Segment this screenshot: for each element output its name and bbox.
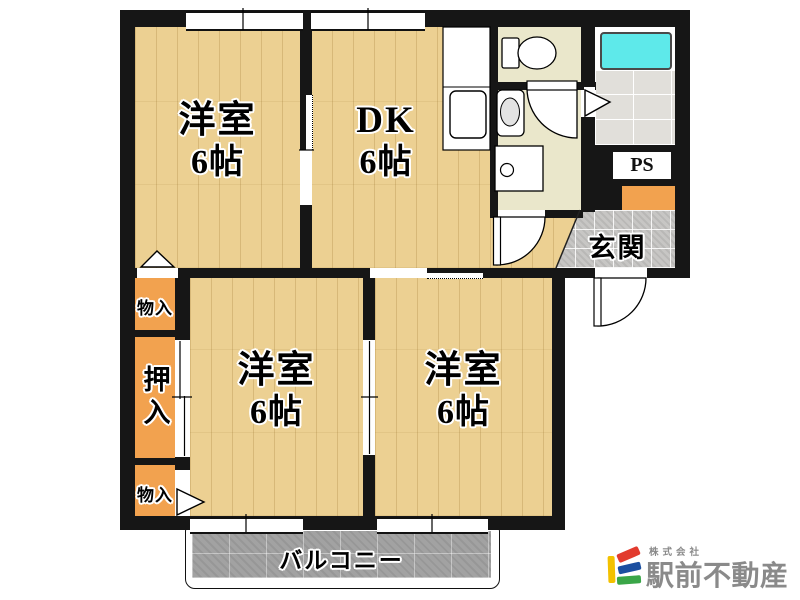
room-size: 6帖 [135,143,300,182]
plan-symbols [0,0,800,600]
washroom-door-swing-icon [497,217,545,265]
closet-top-door-icon [141,251,174,267]
floor-plan: 洋室 6帖 DK 6帖 洋室 6帖 洋室 6帖 玄関 物入 押入 物入 PS バ… [0,0,800,600]
room-name: 洋室 [135,100,300,143]
closet-bottom-door-icon [177,489,204,515]
balcony-label: バルコニー [185,541,498,575]
toilet-bowl-icon [518,37,556,69]
room-name: 洋室 [190,350,363,393]
entrance-door-leaf-icon [594,278,601,326]
toilet-door-swing-icon [527,88,577,138]
room-name: DK [305,100,467,143]
closet-middle-label: 押入 [130,343,180,453]
washing-machine-dial-icon [501,164,514,177]
washbasin-bowl-icon [501,98,520,126]
closet-top-label: 物入 [135,294,175,319]
entrance-label: 玄関 [560,226,675,265]
bath-folding-door-icon [585,90,610,116]
logo-mark-red-bar [616,546,641,563]
room-size: 6帖 [375,393,552,432]
room-label-dk: DK 6帖 [305,100,467,182]
toilet-tank-icon [502,38,519,68]
logo-mark-blue-bar [617,562,641,575]
room-size: 6帖 [190,393,363,432]
room-label-bottom-right: 洋室 6帖 [375,350,552,432]
pipe-space-label: PS [613,152,671,179]
logo-mark-yellow-bar [608,556,616,583]
room-label-bottom-left: 洋室 6帖 [190,350,363,432]
logo-mark-green-bar [617,575,641,585]
washroom-door-leaf-icon [494,217,501,265]
entrance-door-swing-icon [598,278,646,326]
company-name: 駅前不動産 [646,554,789,594]
room-size: 6帖 [305,143,467,182]
company-logo: 株式会社 駅前不動産 [600,537,800,597]
toilet-door-leaf-icon [527,81,577,90]
closet-bottom-label: 物入 [135,481,175,506]
room-label-top-left: 洋室 6帖 [135,100,300,182]
room-name: 洋室 [375,350,552,393]
